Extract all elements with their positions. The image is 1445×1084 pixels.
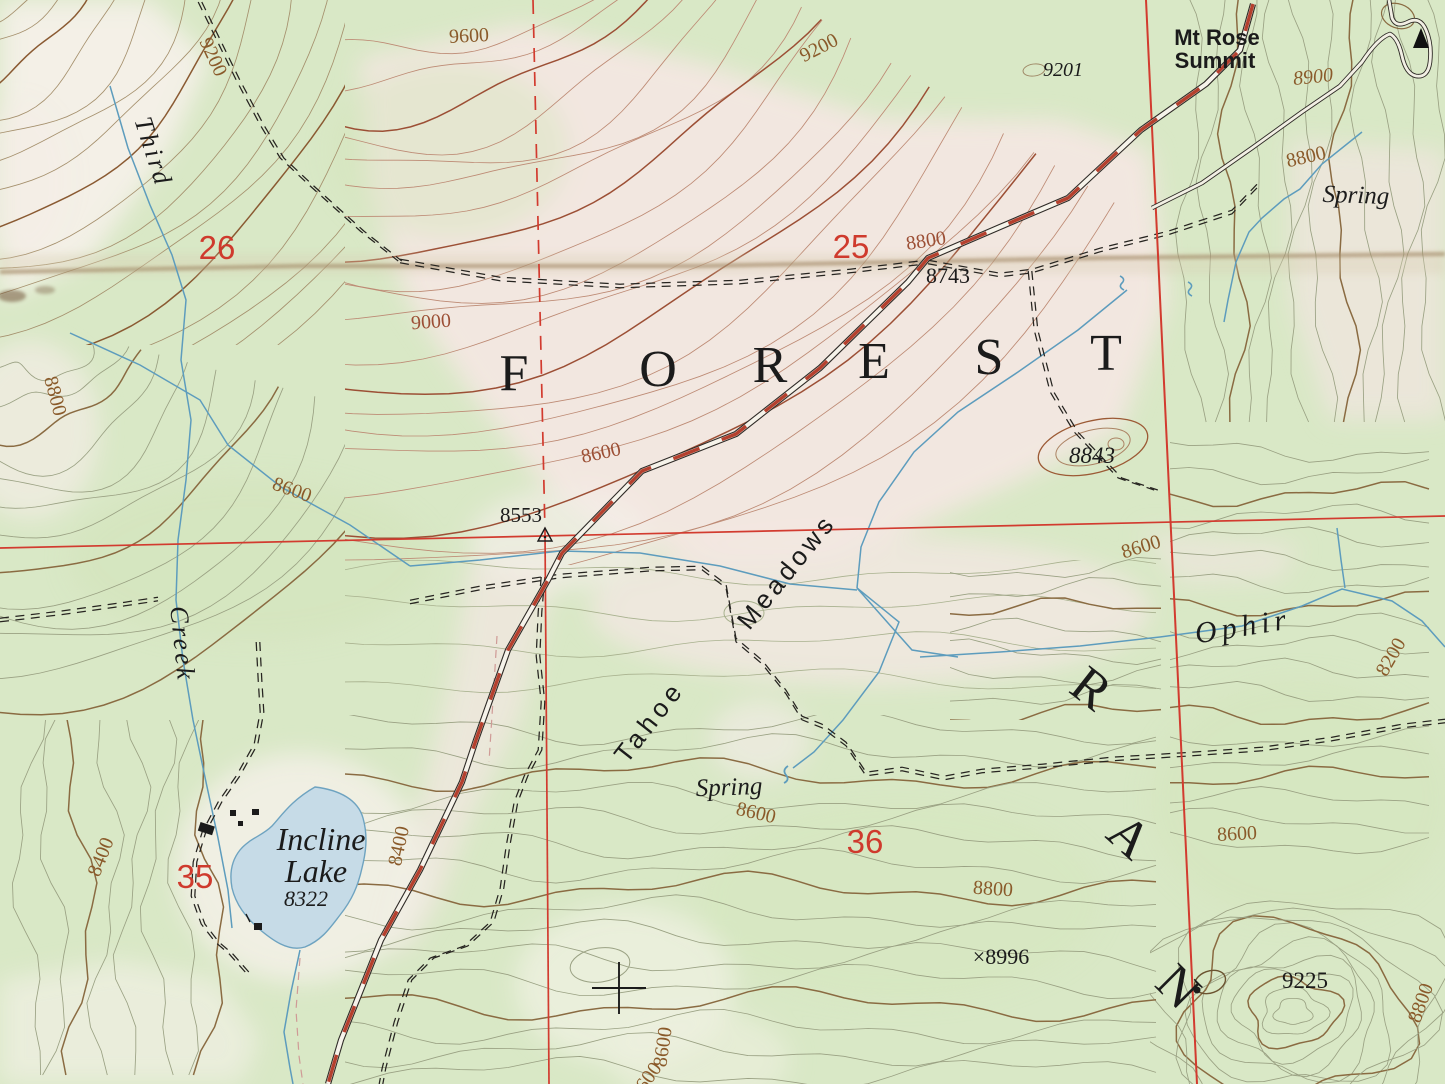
forest-letter: S xyxy=(975,329,1004,386)
mt-rose-summit-label: Summit xyxy=(1175,48,1256,73)
building-square xyxy=(238,821,243,826)
contour-label: 9000 xyxy=(410,310,451,335)
topo-map-screenshot: F O R E S T R A N Tahoe Meadows Mt Rose … xyxy=(0,0,1445,1084)
forest-letter: E xyxy=(858,333,890,390)
building-square xyxy=(230,810,236,816)
section-number-36: 36 xyxy=(847,823,884,860)
spring-label: Spring xyxy=(695,773,763,802)
incline-lake-elevation: 8322 xyxy=(284,886,328,911)
section-number-35: 35 xyxy=(177,858,214,895)
spring-label: Spring xyxy=(1322,181,1390,210)
spot-elevation: 8843 xyxy=(1069,443,1115,468)
building-square xyxy=(252,809,259,815)
spot-elevation: 9201 xyxy=(1043,59,1083,81)
incline-lake-label: Incline xyxy=(276,821,366,857)
spot-elevation: 8743 xyxy=(926,263,970,288)
section-number-25: 25 xyxy=(833,228,870,265)
topo-map: F O R E S T R A N Tahoe Meadows Mt Rose … xyxy=(0,0,1445,1084)
benchmark-dot xyxy=(544,536,547,539)
contour-label: 9600 xyxy=(448,24,489,48)
contour-label: 8600 xyxy=(1216,822,1257,846)
building-square xyxy=(254,923,262,930)
section-number-26: 26 xyxy=(199,229,236,266)
forest-letter: T xyxy=(1090,325,1122,382)
spot-elevation: ×8996 xyxy=(973,944,1029,969)
incline-lake-label: Lake xyxy=(284,853,347,889)
contour-label: 8800 xyxy=(972,877,1013,902)
contour-label: 8900 xyxy=(1292,64,1334,90)
mt-rose-summit-label: Mt Rose xyxy=(1174,25,1260,50)
forest-letter: O xyxy=(639,341,677,398)
forest-letter: R xyxy=(753,337,788,394)
benchmark-elevation: 8553 xyxy=(500,503,542,527)
forest-letter: F xyxy=(500,345,529,402)
spot-elevation: 9225 xyxy=(1282,968,1328,993)
